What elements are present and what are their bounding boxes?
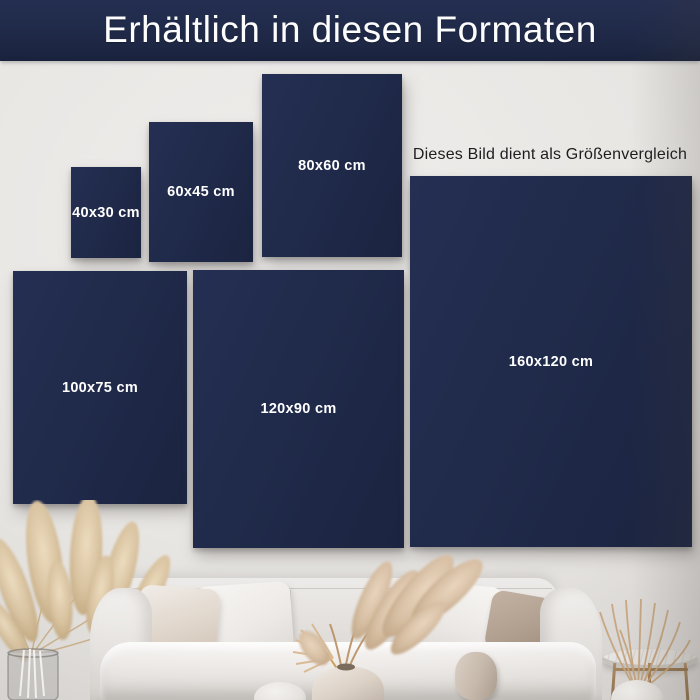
living-room-scene	[0, 0, 700, 700]
sphere-vase-right	[611, 680, 663, 700]
pampas-arrangement-center	[254, 546, 491, 700]
cream-vase	[312, 664, 384, 700]
header-bar: Erhältlich in diesen Formaten	[0, 0, 700, 61]
foreground-decor	[0, 500, 700, 700]
page-title: Erhältlich in diesen Formaten	[103, 11, 597, 50]
ball-vase-center	[254, 682, 306, 700]
dried-grass-right	[600, 599, 690, 700]
size-comparison-image: Erhältlich in diesen Formaten Dieses Bil…	[0, 0, 700, 700]
